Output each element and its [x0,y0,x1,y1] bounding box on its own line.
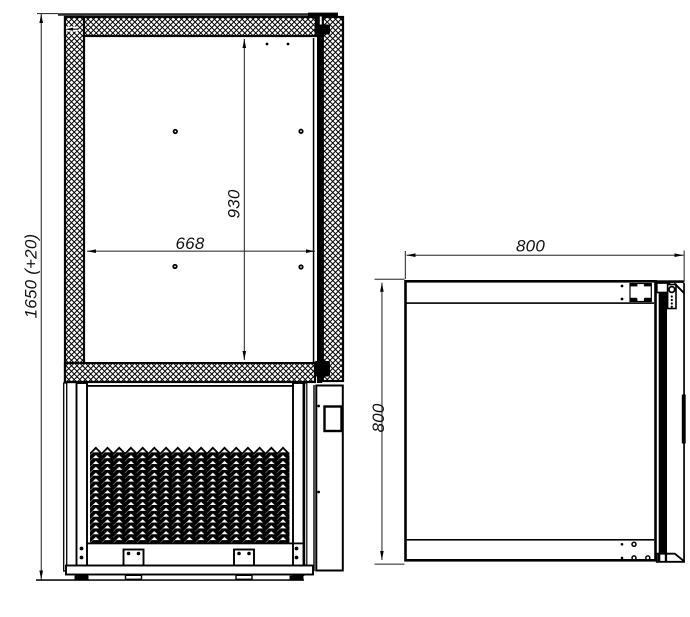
svg-text:668: 668 [176,234,205,253]
svg-text:800: 800 [516,237,545,256]
svg-text:800: 800 [369,403,388,432]
svg-text:1650 (+20): 1650 (+20) [22,234,41,319]
svg-text:930: 930 [225,189,244,218]
